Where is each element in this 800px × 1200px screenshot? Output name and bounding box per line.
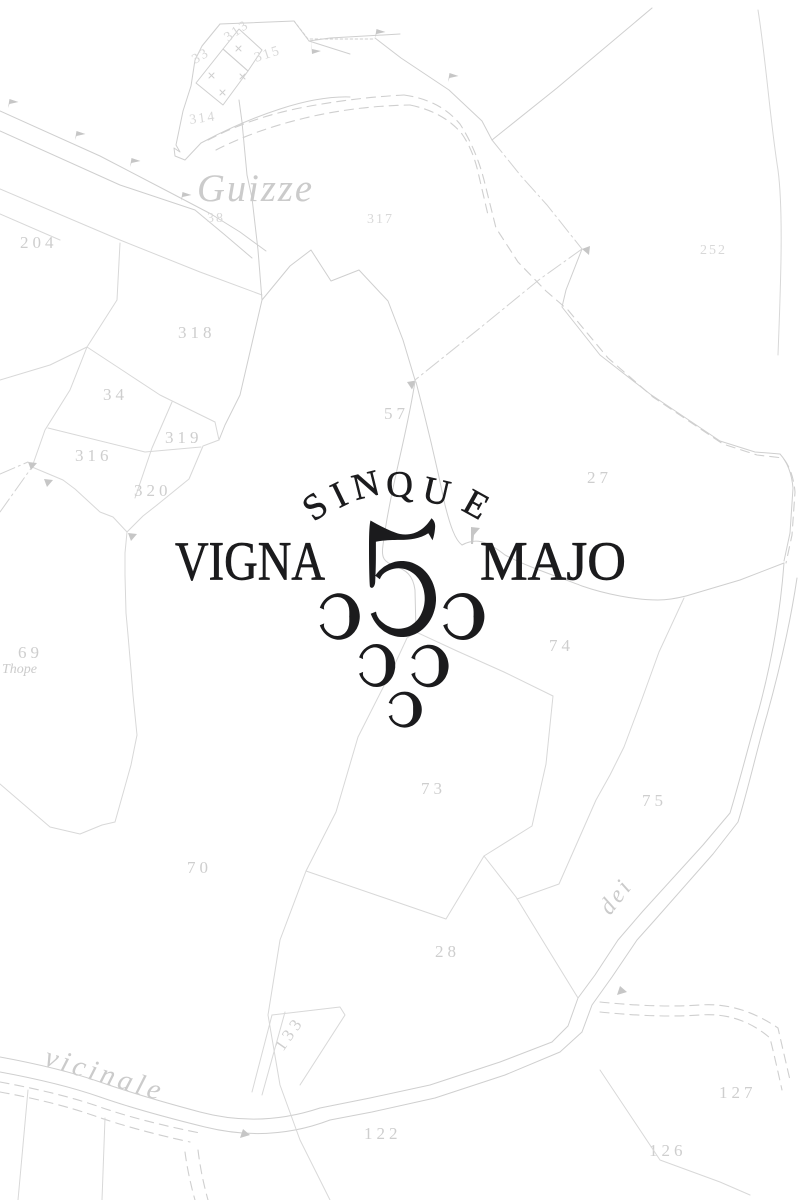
svg-text:127: 127: [719, 1083, 757, 1102]
svg-text:VIGNA: VIGNA: [175, 532, 325, 593]
svg-text:313: 313: [222, 18, 253, 46]
svg-text:57: 57: [384, 404, 409, 423]
svg-text:Thope: Thope: [2, 662, 37, 677]
svg-text:318: 318: [178, 323, 216, 342]
svg-text:dei: dei: [594, 873, 638, 919]
svg-text:34: 34: [103, 385, 128, 404]
svg-text:Q: Q: [386, 464, 414, 506]
svg-text:317: 317: [367, 212, 394, 227]
svg-text:38: 38: [207, 211, 225, 226]
svg-text:316: 316: [75, 446, 113, 465]
svg-text:204: 204: [20, 233, 58, 252]
svg-text:75: 75: [642, 791, 667, 810]
svg-text:U: U: [419, 469, 454, 515]
svg-text:133: 133: [271, 1013, 308, 1055]
svg-text:Guizze: Guizze: [197, 167, 314, 210]
svg-text:70: 70: [187, 858, 212, 877]
svg-text:319: 319: [165, 428, 203, 447]
svg-text:315: 315: [253, 43, 283, 66]
svg-text:33: 33: [190, 45, 213, 67]
svg-text:314: 314: [188, 109, 217, 128]
svg-text:320: 320: [134, 481, 172, 500]
svg-text:126: 126: [649, 1141, 687, 1160]
svg-text:73: 73: [421, 779, 446, 798]
svg-text:252: 252: [700, 243, 727, 258]
svg-text:74: 74: [549, 636, 574, 655]
svg-text:69: 69: [18, 643, 43, 662]
svg-text:27: 27: [587, 468, 612, 487]
svg-text:MAJO: MAJO: [480, 532, 626, 593]
svg-text:E: E: [456, 482, 496, 529]
svg-text:28: 28: [435, 942, 460, 961]
svg-text:122: 122: [364, 1124, 402, 1143]
svg-text:N: N: [348, 463, 384, 509]
